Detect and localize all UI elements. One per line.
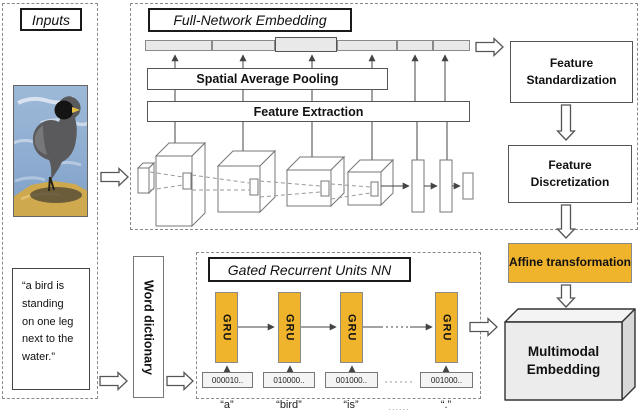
- gru-unit-2: GRU: [278, 292, 301, 363]
- feature-bar-segment: [337, 40, 397, 51]
- one-hot-code-box: 000010..: [202, 372, 253, 388]
- token-word: “bird”: [269, 399, 309, 411]
- word-dictionary-label: Word dictionary: [142, 280, 156, 375]
- gru-unit-label: GRU: [221, 314, 233, 341]
- word-dictionary-box: Word dictionary: [133, 256, 164, 398]
- full-network-embedding-title: Full-Network Embedding: [148, 8, 352, 32]
- feature-extraction-box: Feature Extraction: [147, 101, 470, 122]
- feature-bar-segment: [433, 40, 470, 51]
- input-image-frame: [13, 85, 88, 217]
- gru-unit-label: GRU: [284, 314, 296, 341]
- token-word: “a”: [207, 399, 247, 411]
- input-caption-box: “a bird is standing on one leg next to t…: [12, 268, 90, 390]
- one-hot-code-box: 001000..: [420, 372, 473, 388]
- arrow-image-to-cnn-icon: [101, 169, 128, 186]
- arrow-affine-to-multimodal-icon: [558, 285, 575, 307]
- one-hot-code-box: 010000..: [263, 372, 315, 388]
- feature-bar-segment: [397, 40, 433, 51]
- one-hot-code-box: 001000..: [325, 372, 378, 388]
- affine-transformation-box: Affine transformation: [508, 243, 632, 283]
- token-word: “.”: [426, 399, 466, 411]
- feature-standardization-box: Feature Standardization: [510, 41, 633, 103]
- gru-title: Gated Recurrent Units NN: [208, 257, 411, 282]
- gru-unit-label: GRU: [346, 314, 358, 341]
- spatial-average-pooling-box: Spatial Average Pooling: [147, 68, 388, 90]
- gru-unit-3: GRU: [340, 292, 363, 363]
- feature-bar-segment: [212, 40, 275, 51]
- feature-bar-segment-highlighted: [275, 37, 337, 52]
- arrow-caption-to-dictionary-icon: [100, 373, 127, 390]
- gru-unit-4: GRU: [435, 292, 458, 363]
- arrow-dictionary-to-gru-icon: [167, 373, 193, 390]
- gru-unit-1: GRU: [215, 292, 238, 363]
- feature-bar-segment: [145, 40, 212, 51]
- feature-discretization-box: Feature Discretization: [508, 145, 632, 203]
- inputs-title: Inputs: [20, 8, 82, 31]
- figure-canvas: Inputs “a bird is standing on one leg ne…: [0, 0, 640, 419]
- multimodal-embedding-label: Multimodal Embedding: [505, 322, 622, 400]
- gru-unit-label: GRU: [441, 314, 453, 341]
- word-ellipsis: ......: [383, 402, 415, 412]
- token-word: “is”: [331, 399, 371, 411]
